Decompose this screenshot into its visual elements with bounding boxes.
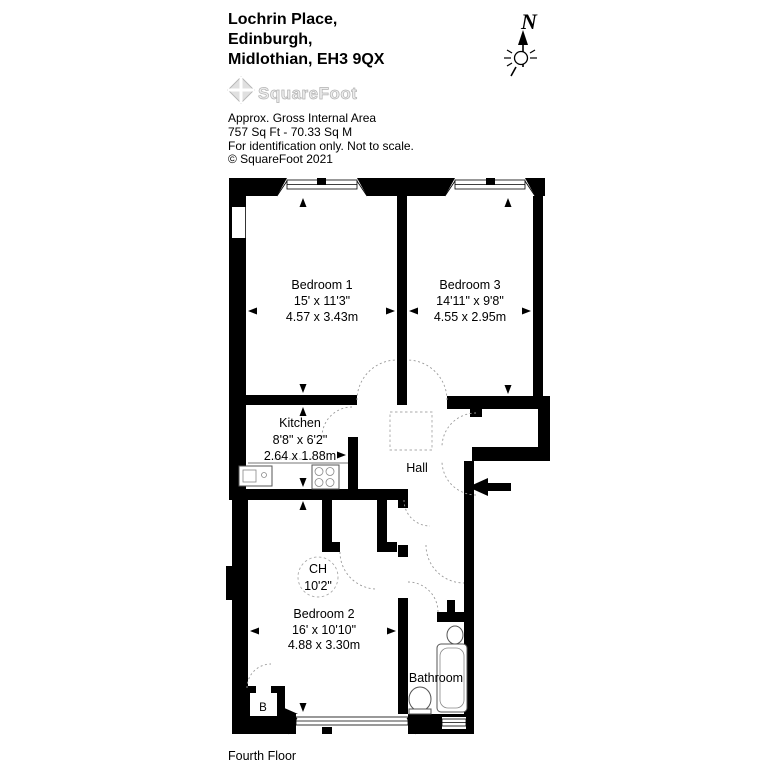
floorplan: CH 10'2" Bedroom 1 15' x 11'3" 4.57 x 3.… bbox=[226, 178, 550, 734]
bedroom3-imperial: 14'11" x 9'8" bbox=[436, 294, 504, 308]
bedroom2-name: Bedroom 2 bbox=[293, 607, 354, 621]
bedroom3-door-arc bbox=[407, 360, 447, 400]
floorplan-page: Lochrin Place, Edinburgh, Midlothian, EH… bbox=[0, 0, 768, 768]
address-line-2: Edinburgh, bbox=[228, 31, 312, 48]
area-info-block: Approx. Gross Internal Area 757 Sq Ft - … bbox=[228, 111, 414, 166]
entrance-door-arc bbox=[442, 413, 476, 447]
address-block: Lochrin Place, Edinburgh, Midlothian, EH… bbox=[228, 11, 385, 68]
area-info-line-3: For identification only. Not to scale. bbox=[228, 139, 414, 153]
north-compass: N bbox=[504, 9, 538, 76]
kitchen-name: Kitchen bbox=[279, 416, 321, 430]
boiler-label: B bbox=[259, 702, 267, 714]
hall-label: Hall bbox=[406, 461, 428, 475]
bedroom1-name: Bedroom 1 bbox=[291, 278, 352, 292]
kitchen-hob bbox=[312, 465, 339, 489]
squarefoot-logo-icon bbox=[228, 77, 254, 103]
bedroom2-metric: 4.88 x 3.30m bbox=[288, 638, 360, 652]
bathroom-door-arc bbox=[408, 582, 438, 612]
kitchen-imperial: 8'8" x 6'2" bbox=[273, 433, 328, 447]
floor-label: Fourth Floor bbox=[228, 749, 296, 763]
toilet bbox=[409, 687, 431, 714]
door-arcs bbox=[247, 360, 476, 688]
bathroom-label: Bathroom bbox=[409, 671, 463, 685]
bedroom2-imperial: 16' x 10'10" bbox=[292, 623, 356, 637]
ceiling-height-line-2: 10'2" bbox=[304, 579, 332, 593]
kitchen-metric: 2.64 x 1.88m bbox=[264, 449, 336, 463]
kitchen-sink bbox=[239, 466, 272, 486]
floorplan-svg: Lochrin Place, Edinburgh, Midlothian, EH… bbox=[0, 0, 768, 768]
address-line-1: Lochrin Place, bbox=[228, 11, 337, 28]
bedroom2-label: Bedroom 2 16' x 10'10" 4.88 x 3.30m bbox=[288, 607, 360, 652]
bathroom-sink bbox=[447, 626, 463, 644]
window-bathroom bbox=[442, 719, 466, 726]
ceiling-height-badge: CH 10'2" bbox=[298, 557, 338, 597]
sun-icon bbox=[504, 50, 537, 76]
area-info-line-4: © SquareFoot 2021 bbox=[228, 152, 333, 166]
bedroom1-imperial: 15' x 11'3" bbox=[294, 294, 350, 308]
bedroom3-label: Bedroom 3 14'11" x 9'8" 4.55 x 2.95m bbox=[434, 278, 506, 324]
area-info-line-2: 757 Sq Ft - 70.33 Sq M bbox=[228, 125, 352, 139]
squarefoot-logo-text: SquareFoot bbox=[258, 84, 357, 103]
bedroom1-door-arc bbox=[357, 360, 397, 400]
wall-niche bbox=[232, 207, 246, 238]
bedroom2-door-arc bbox=[340, 552, 377, 589]
ceiling-height-line-1: CH bbox=[309, 562, 327, 576]
boiler-door-arc bbox=[247, 664, 271, 688]
bedroom1-metric: 4.57 x 3.43m bbox=[286, 310, 358, 324]
address-line-3: Midlothian, EH3 9QX bbox=[228, 51, 385, 68]
squarefoot-logo: SquareFoot bbox=[228, 77, 357, 103]
bedroom3-name: Bedroom 3 bbox=[439, 278, 500, 292]
entrance-arrow-icon bbox=[468, 478, 511, 496]
hall-cupboard-outline bbox=[390, 412, 432, 450]
north-label: N bbox=[520, 9, 538, 34]
bedroom1-label: Bedroom 1 15' x 11'3" 4.57 x 3.43m bbox=[286, 278, 358, 324]
bedroom3-metric: 4.55 x 2.95m bbox=[434, 310, 506, 324]
area-info-line-1: Approx. Gross Internal Area bbox=[228, 111, 376, 125]
corridor-door-arc bbox=[426, 545, 464, 583]
